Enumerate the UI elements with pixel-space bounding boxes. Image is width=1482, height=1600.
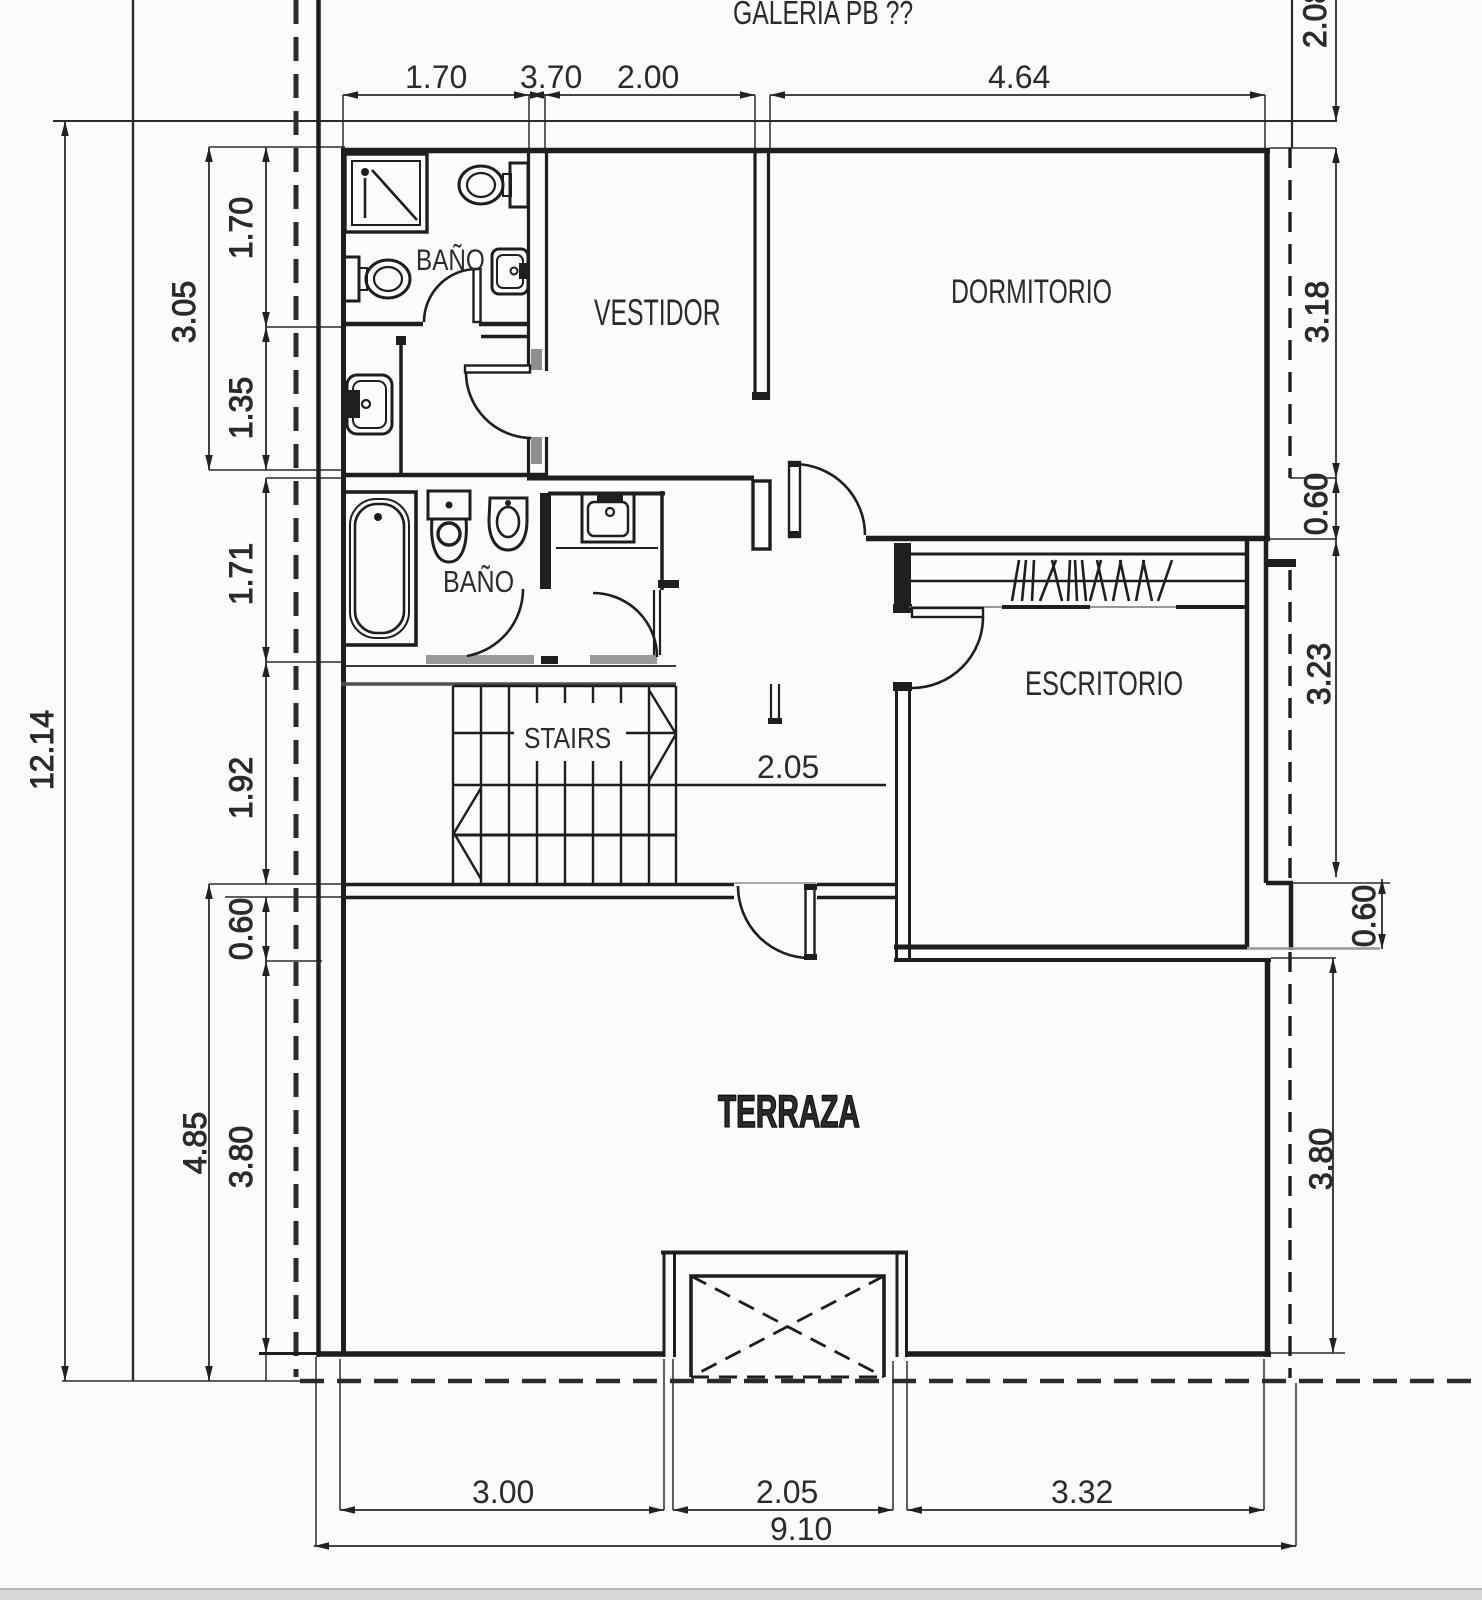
svg-text:3.80: 3.80 [1303, 1128, 1339, 1190]
svg-text:2.05: 2.05 [757, 749, 819, 785]
svg-text:12.14: 12.14 [24, 710, 60, 790]
svg-text:GALERIA PB ??: GALERIA PB ?? [733, 0, 913, 32]
svg-text:1.92: 1.92 [223, 757, 259, 819]
svg-text:2.00: 2.00 [617, 59, 679, 95]
svg-text:3.05: 3.05 [166, 281, 202, 343]
svg-text:1.70: 1.70 [405, 59, 467, 95]
svg-text:9.10: 9.10 [770, 1511, 832, 1547]
svg-text:VESTIDOR: VESTIDOR [594, 291, 721, 333]
svg-text:DORMITORIO: DORMITORIO [951, 273, 1112, 311]
svg-text:0.60: 0.60 [1298, 473, 1334, 535]
svg-text:0.60: 0.60 [1346, 885, 1382, 947]
svg-text:0.60: 0.60 [223, 898, 259, 960]
svg-text:TERRAZA: TERRAZA [718, 1087, 860, 1138]
svg-text:3.80: 3.80 [223, 1126, 259, 1188]
svg-text:3.70: 3.70 [520, 59, 582, 95]
svg-text:4.64: 4.64 [988, 59, 1050, 95]
svg-text:BAÑO: BAÑO [416, 243, 485, 277]
svg-text:1.71: 1.71 [223, 543, 259, 605]
svg-text:2.08: 2.08 [1297, 0, 1333, 48]
svg-text:3.23: 3.23 [1301, 643, 1337, 705]
svg-text:BAÑO: BAÑO [443, 563, 514, 598]
svg-text:1.70: 1.70 [223, 197, 259, 259]
svg-text:3.18: 3.18 [1299, 281, 1335, 343]
svg-text:3.32: 3.32 [1051, 1474, 1113, 1510]
svg-text:STAIRS: STAIRS [524, 722, 611, 754]
svg-text:3.00: 3.00 [472, 1474, 534, 1510]
svg-text:ESCRITORIO: ESCRITORIO [1025, 666, 1183, 703]
svg-text:2.05: 2.05 [756, 1474, 818, 1510]
svg-text:4.85: 4.85 [177, 1112, 213, 1174]
svg-text:1.35: 1.35 [223, 377, 259, 439]
